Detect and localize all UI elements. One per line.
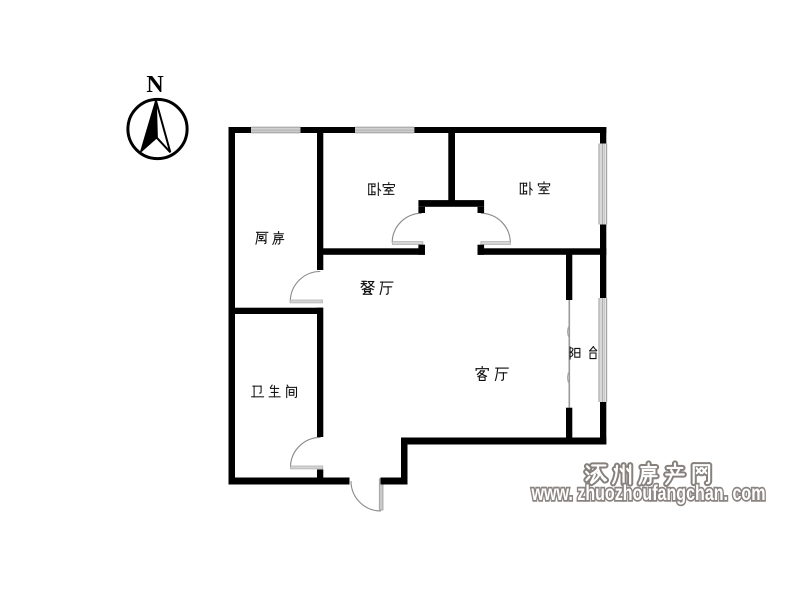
svg-text:N: N xyxy=(146,72,164,98)
svg-text:www. zhuozhoufangchan. com: www. zhuozhoufangchan. com xyxy=(531,482,766,505)
